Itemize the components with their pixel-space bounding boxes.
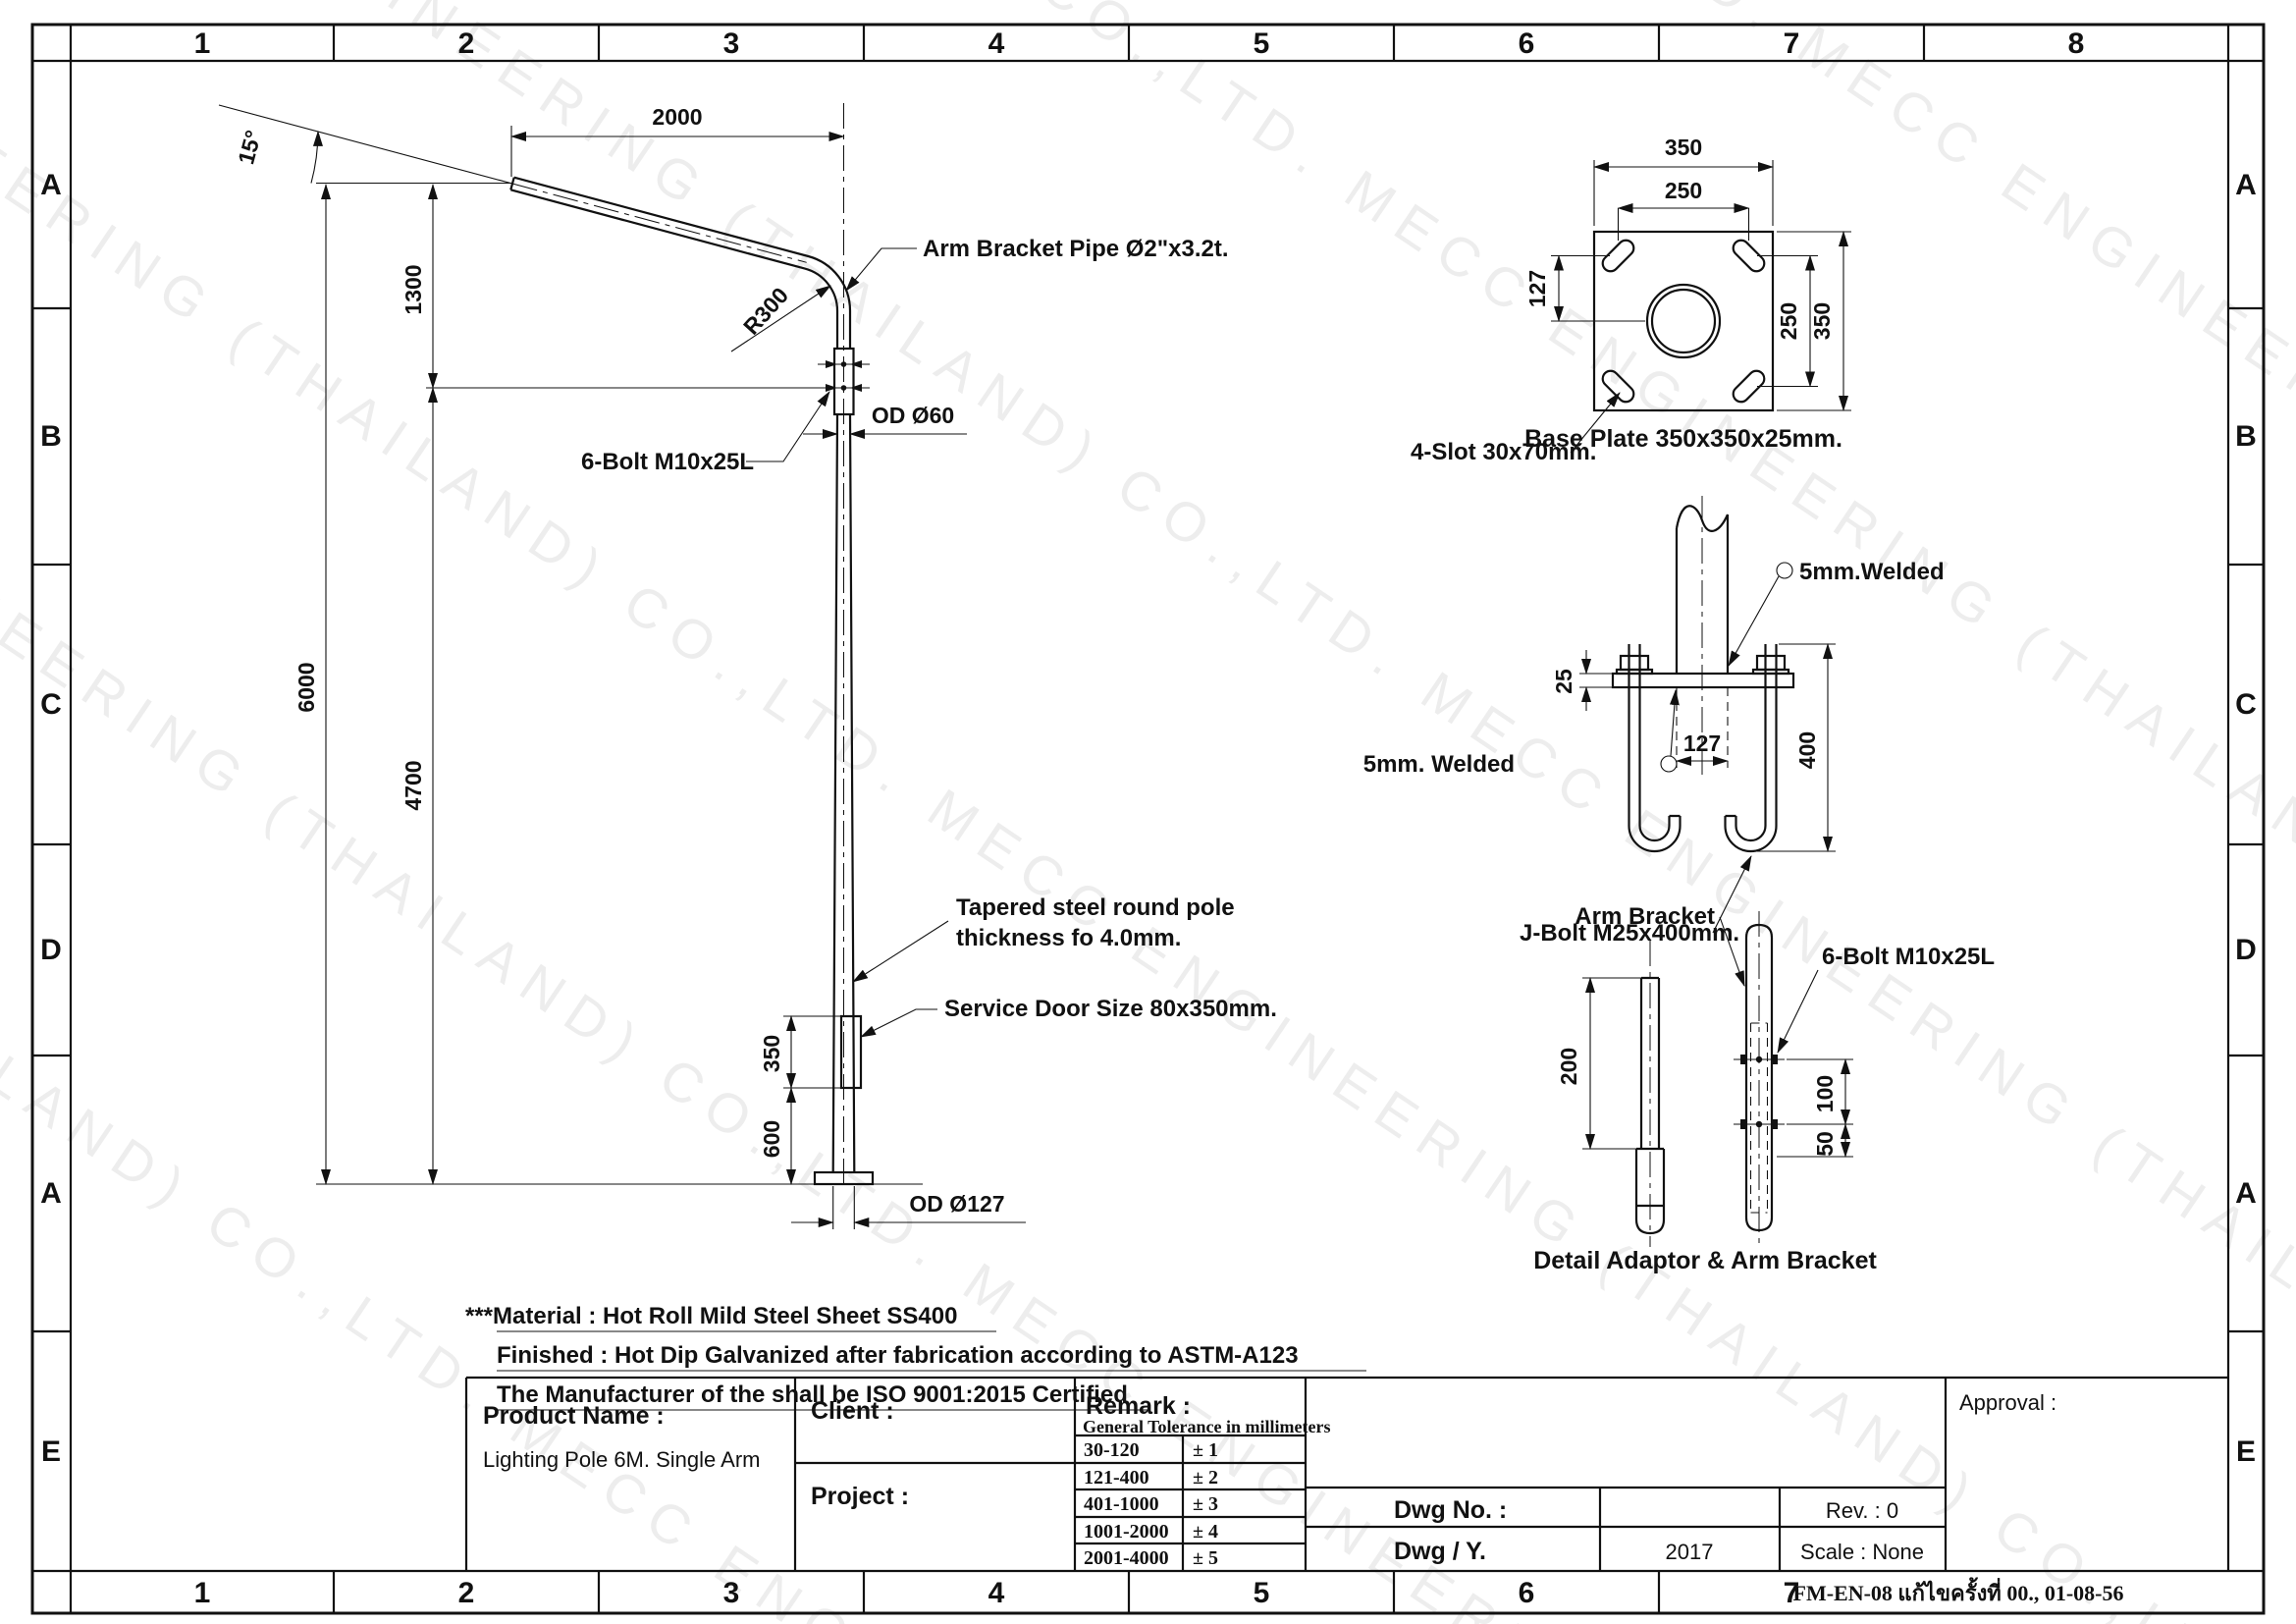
product-name-value: Lighting Pole 6M. Single Arm	[483, 1447, 761, 1472]
weld-label-right: 5mm.Welded	[1729, 559, 1945, 666]
adaptor-bolts	[426, 360, 870, 392]
grid-row-right: E	[2236, 1435, 2256, 1468]
grid-col-bottom: 3	[723, 1577, 740, 1609]
grid-col-bottom: 5	[1254, 1577, 1270, 1609]
svg-text:25: 25	[1551, 669, 1576, 694]
tol-value: ± 2	[1193, 1467, 1218, 1489]
six-bolt-label: 6-Bolt M10x25L	[581, 392, 829, 475]
tolerance-table: 30-120 ± 1 121-400 ± 2 401-1000 ± 3 1001…	[1084, 1439, 1218, 1569]
svg-text:127: 127	[1524, 270, 1550, 307]
grid-col-bottom: 4	[988, 1577, 1005, 1609]
tol-range: 1001-2000	[1084, 1521, 1169, 1543]
grid-row-right: B	[2235, 420, 2257, 453]
arm-pipe-label: Arm Bracket Pipe Ø2"x3.2t.	[846, 236, 1229, 291]
svg-text:50: 50	[1812, 1131, 1838, 1157]
svg-text:350: 350	[759, 1035, 784, 1072]
arm-angle-dim: 15°	[219, 105, 512, 184]
grid-col-top: 2	[458, 27, 475, 60]
form-reference: FM-EN-08 แก้ไขครั้งที่ 00., 01-08-56	[1793, 1577, 2124, 1605]
svg-text:MECC ENGINEERING (THAILAND) CO: MECC ENGINEERING (THAILAND) CO.,LTD. MEC…	[417, 0, 2296, 973]
svg-text:350: 350	[1809, 302, 1835, 340]
grid-col-top: 7	[1784, 27, 1800, 60]
svg-text:6000: 6000	[294, 662, 319, 712]
service-door-label: Service Door Size 80x350mm.	[861, 996, 1277, 1037]
top-od-dim: OD Ø60	[803, 403, 967, 434]
svg-text:MECC ENGINEERING (THAILAND) CO: MECC ENGINEERING (THAILAND) CO.,LTD. MEC…	[382, 0, 2296, 499]
grid-col-top: 1	[194, 27, 211, 60]
j-bolt-right	[1726, 644, 1777, 851]
tol-value: ± 5	[1193, 1547, 1218, 1569]
rev-value: Rev. : 0	[1826, 1498, 1898, 1523]
svg-text:OD Ø127: OD Ø127	[909, 1191, 1004, 1217]
svg-text:600: 600	[759, 1120, 784, 1158]
svg-text:MECC ENGINEERING (THAILAND) CO: MECC ENGINEERING (THAILAND) CO.,LTD. MEC…	[0, 470, 1881, 1624]
grid-row-right: C	[2235, 688, 2257, 721]
note-finish: Finished : Hot Dip Galvanized after fabr…	[497, 1342, 1299, 1369]
grid-row-right: D	[2235, 934, 2257, 966]
tol-range: 2001-4000	[1084, 1547, 1169, 1569]
project-label: Project :	[811, 1483, 909, 1510]
grid-row-left: D	[40, 934, 62, 966]
tol-range: 121-400	[1084, 1467, 1149, 1489]
svg-text:4700: 4700	[400, 760, 426, 810]
svg-text:15°: 15°	[233, 128, 266, 167]
grid-col-top: 5	[1254, 27, 1270, 60]
svg-text:OD Ø60: OD Ø60	[872, 403, 954, 428]
dwg-no-label: Dwg No. :	[1394, 1496, 1507, 1524]
client-label: Client :	[811, 1397, 894, 1425]
svg-text:6-Bolt M10x25L: 6-Bolt M10x25L	[1822, 944, 1995, 970]
svg-text:1300: 1300	[400, 264, 426, 314]
svg-text:400: 400	[1794, 731, 1820, 769]
svg-text:100: 100	[1812, 1075, 1838, 1112]
arm-drop-dim: 1300	[400, 185, 433, 388]
bracket-caption: Detail Adaptor & Arm Bracket	[1533, 1247, 1877, 1274]
svg-text:250: 250	[1665, 178, 1702, 203]
scale-value: Scale : None	[1800, 1540, 1924, 1564]
dwg-year: 2017	[1666, 1540, 1714, 1564]
material-notes: ***Material : Hot Roll Mild Steel Sheet …	[465, 1303, 1366, 1410]
grid-col-top: 6	[1519, 27, 1535, 60]
svg-text:Tapered steel round pole: Tapered steel round pole	[956, 894, 1235, 921]
svg-text:200: 200	[1556, 1048, 1581, 1085]
grid-row-left: A	[40, 169, 62, 201]
svg-text:350: 350	[1665, 135, 1702, 160]
drawing-sheet: MECC ENGINEERING (THAILAND) CO.,LTD. MEC…	[0, 0, 2296, 1624]
svg-text:Arm Bracket Pipe Ø2"x3.2t.: Arm Bracket Pipe Ø2"x3.2t.	[923, 236, 1229, 262]
tol-range: 401-1000	[1084, 1493, 1159, 1515]
svg-text:R300: R300	[738, 283, 793, 340]
grid-row-right: A	[2235, 169, 2257, 201]
grid-row-left: A	[40, 1177, 62, 1210]
svg-text:6-Bolt M10x25L: 6-Bolt M10x25L	[581, 449, 754, 475]
grid-col-bottom: 6	[1519, 1577, 1535, 1609]
tol-value: ± 3	[1193, 1493, 1218, 1515]
svg-text:5mm.Welded: 5mm.Welded	[1799, 559, 1945, 585]
shaft-height-dim: 4700	[400, 388, 433, 1184]
note-material: ***Material : Hot Roll Mild Steel Sheet …	[465, 1303, 957, 1329]
grid-col-top: 8	[2068, 27, 2085, 60]
svg-text:5mm. Welded: 5mm. Welded	[1363, 751, 1515, 778]
remark-subtitle: General Tolerance in millimeters	[1083, 1417, 1330, 1436]
svg-text:Arm Bracket: Arm Bracket	[1575, 903, 1715, 930]
grid-col-bottom: 2	[458, 1577, 475, 1609]
base-plate-caption: Base Plate 350x350x25mm.	[1524, 425, 1842, 453]
svg-text:thickness fo 4.0mm.: thickness fo 4.0mm.	[956, 925, 1181, 951]
dwg-y-label: Dwg / Y.	[1394, 1538, 1486, 1565]
svg-text:2000: 2000	[652, 104, 702, 130]
tol-value: ± 1	[1193, 1439, 1218, 1461]
approval-label: Approval :	[1959, 1390, 2056, 1415]
grid-col-top: 3	[723, 27, 740, 60]
grid-col-top: 4	[988, 27, 1005, 60]
product-name-label: Product Name :	[483, 1402, 665, 1430]
tol-value: ± 4	[1193, 1521, 1218, 1543]
drawing-canvas: MECC ENGINEERING (THAILAND) CO.,LTD. MEC…	[0, 0, 2296, 1624]
grid-row-left: B	[40, 420, 62, 453]
remark-label: Remark :	[1086, 1392, 1191, 1420]
svg-text:250: 250	[1776, 302, 1801, 340]
grid-row-right: A	[2235, 1177, 2257, 1210]
svg-text:127: 127	[1683, 731, 1721, 756]
grid-col-bottom: 1	[194, 1577, 211, 1609]
grid-row-left: C	[40, 688, 62, 721]
grid-row-left: E	[41, 1435, 61, 1468]
svg-text:Service Door Size 80x350mm.: Service Door Size 80x350mm.	[944, 996, 1277, 1022]
tol-range: 30-120	[1084, 1439, 1140, 1461]
